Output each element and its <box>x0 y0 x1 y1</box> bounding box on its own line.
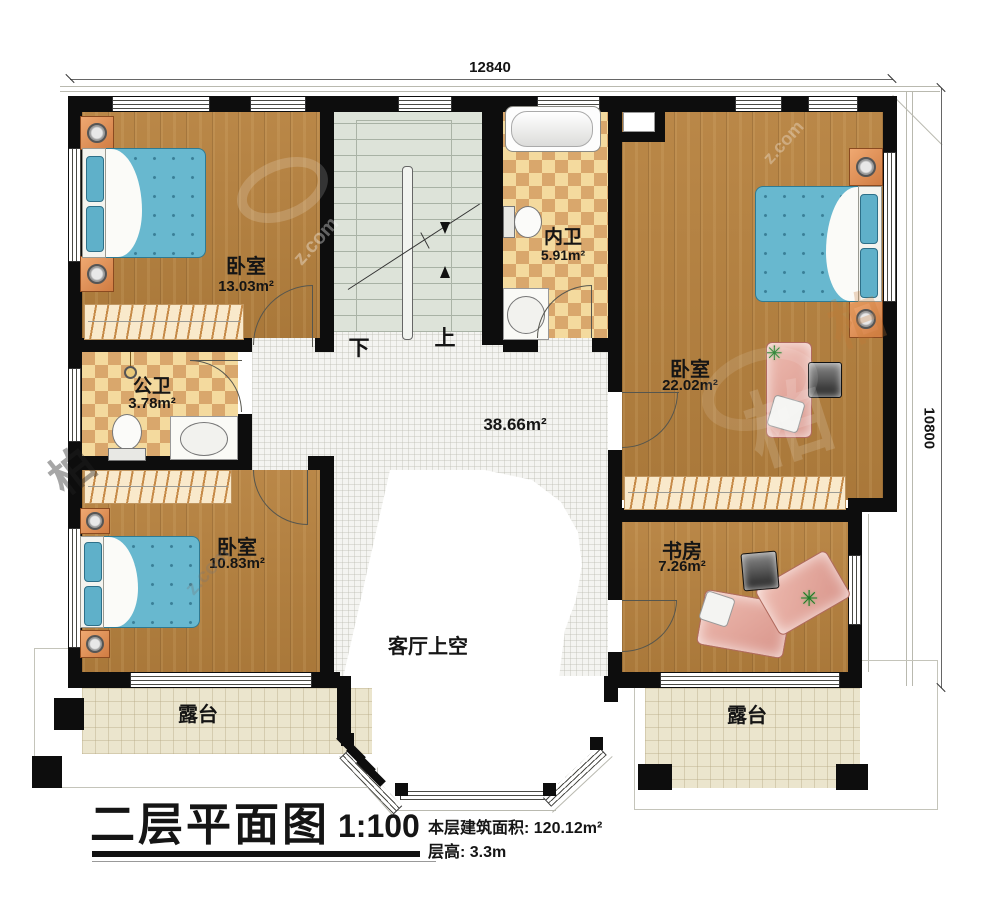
terrace-door-window <box>130 673 312 687</box>
dimension-top-value: 12840 <box>440 60 540 77</box>
title-underline-thick <box>92 851 420 857</box>
eaves-line <box>912 91 913 686</box>
eaves-corner-line <box>892 95 942 145</box>
wall-hall-bedroom-upper <box>608 350 622 392</box>
bathtub-inner <box>511 111 593 147</box>
bay-post <box>395 783 408 796</box>
room-name: 露台 <box>148 704 248 726</box>
wardrobe-rail <box>628 492 842 493</box>
pillow <box>860 194 878 244</box>
wardrobe-rail <box>88 486 228 487</box>
pillow <box>86 206 104 252</box>
lamp-icon <box>86 635 104 653</box>
bay-post <box>590 737 603 750</box>
door-leaf <box>190 360 242 361</box>
bay-window-glazing <box>400 788 550 800</box>
computer-monitor <box>740 551 779 592</box>
wardrobe <box>84 470 232 504</box>
window <box>884 152 896 302</box>
pillow <box>860 248 878 298</box>
wardrobe <box>624 476 846 510</box>
wall-bay-stub-right <box>604 676 618 702</box>
window <box>69 368 81 442</box>
door-leaf <box>591 285 592 338</box>
plant-icon: ✳ <box>766 344 783 364</box>
stair-arrow-up-icon <box>440 266 450 278</box>
window <box>112 97 210 111</box>
stair-up-label: 上 <box>430 327 460 350</box>
lamp-icon <box>856 157 876 177</box>
room-area: 13.03m² <box>191 279 301 296</box>
terrace-post <box>638 764 672 790</box>
wall-stairs-bath <box>482 96 503 345</box>
window <box>398 97 452 111</box>
wardrobe-rail <box>88 321 240 322</box>
dimension-right-value: 10800 <box>920 388 937 468</box>
door-leaf <box>312 285 313 347</box>
room-area: 22.02m² <box>635 378 745 395</box>
wall-bedroom1-bottom-b <box>315 338 334 352</box>
wall-hall-bedroom-lower <box>608 450 622 600</box>
stair-arrow-down-icon <box>440 222 450 234</box>
sink <box>180 422 228 456</box>
terrace-post <box>54 698 84 730</box>
stair-down-label: 下 <box>344 337 374 360</box>
wall-innerbath-bottom-b <box>592 338 608 352</box>
window <box>250 97 306 111</box>
floor-plan: 12840 10800 <box>0 0 1000 914</box>
terrace-right-floor <box>645 688 860 788</box>
room-name: 露台 <box>697 705 797 727</box>
toilet-tank <box>108 448 146 461</box>
room-name: 客厅上空 <box>358 636 498 658</box>
room-name: 内卫 <box>513 228 613 249</box>
door-leaf <box>307 470 308 525</box>
pillow <box>84 542 102 582</box>
lamp-icon <box>87 123 107 143</box>
window <box>849 555 861 625</box>
pillow <box>86 156 104 202</box>
plan-title: 二层平面图 <box>90 800 330 850</box>
pillow <box>84 586 102 626</box>
room-area: 5.91m² <box>508 248 618 263</box>
wall-publicbath-right-a <box>238 338 252 352</box>
window <box>735 97 782 111</box>
toilet-bowl <box>112 414 142 450</box>
wall-innerbath-bottom-a <box>503 338 538 352</box>
bedroom-right-floor <box>622 112 883 500</box>
lamp-icon <box>856 309 876 329</box>
wall-bedroom-stairs <box>320 96 334 352</box>
window <box>69 148 81 262</box>
plan-scale: 1:100 <box>338 809 420 844</box>
terrace-door-window <box>660 673 840 687</box>
window <box>808 97 858 111</box>
room-area: 3.78m² <box>97 396 207 413</box>
door-leaf <box>622 600 677 601</box>
terrace-post <box>836 764 868 790</box>
terrace-post <box>32 756 62 788</box>
hall-area: 38.66m² <box>460 416 570 435</box>
wall-bedroom1-bottom-a <box>68 338 252 352</box>
eaves-line <box>868 514 869 672</box>
wall-bath-bedroom <box>608 96 622 350</box>
title-underline-thin <box>92 861 436 862</box>
bay-outline <box>396 810 556 811</box>
plant-icon: ✳ <box>800 588 818 610</box>
wall-duct-bottom <box>622 132 663 142</box>
dimension-line-right <box>941 88 942 688</box>
shower-tray <box>623 112 655 132</box>
dimension-line-top <box>70 79 893 80</box>
room-area: 10.83m² <box>182 556 292 573</box>
wall-study-top <box>608 508 862 522</box>
floor-area-text: 本层建筑面积: 120.12m² <box>428 820 602 838</box>
lamp-icon <box>86 512 104 530</box>
bay-post <box>543 783 556 796</box>
wardrobe <box>84 304 244 340</box>
room-area: 7.26m² <box>627 559 737 576</box>
eaves-line <box>60 91 940 92</box>
eaves-line <box>906 91 907 686</box>
wall-bedroom3-right <box>320 456 334 688</box>
lamp-icon <box>87 264 107 284</box>
eaves-line <box>60 86 940 87</box>
floor-height-text: 层高: 3.3m <box>428 844 506 862</box>
wall-bay-stub-left <box>337 676 351 738</box>
computer-monitor <box>808 362 842 398</box>
room-name: 卧室 <box>196 256 296 278</box>
